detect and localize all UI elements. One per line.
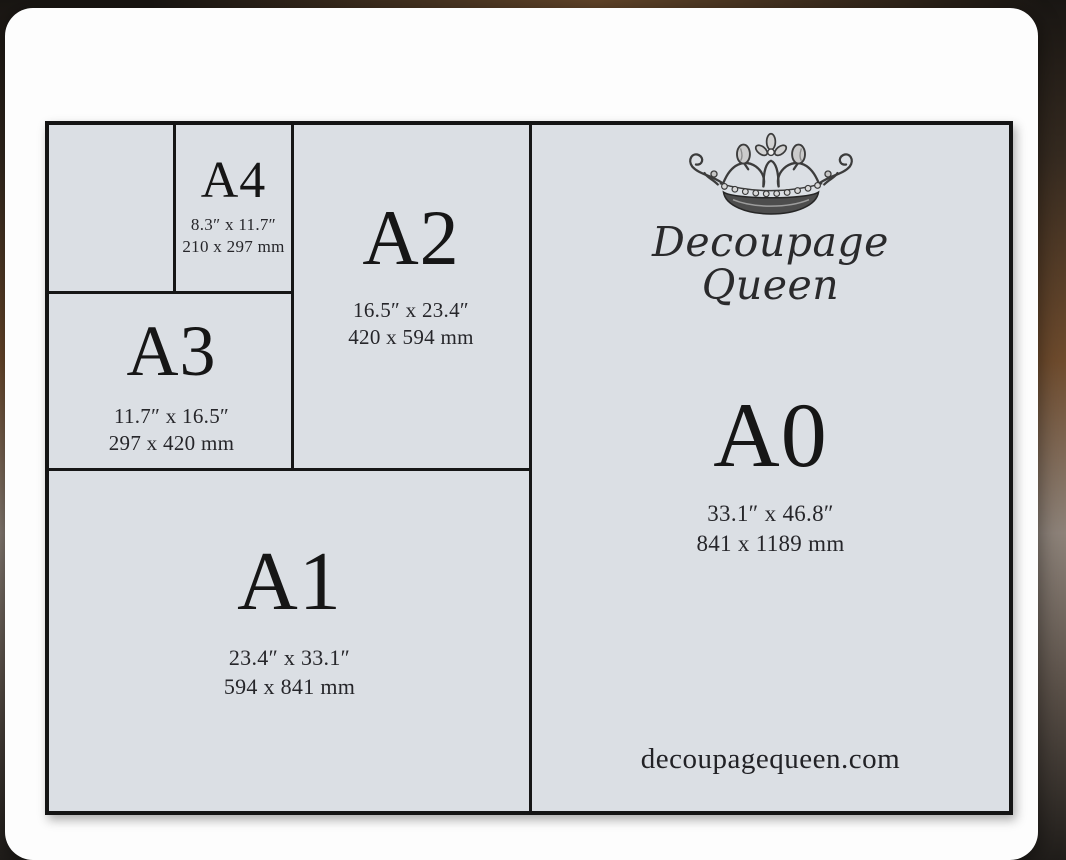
chart-grid: A4 8.3″ x 11.7″ 210 x 297 mm A3 11.7″ x …: [49, 125, 1009, 811]
size-label-a1: A1: [49, 540, 530, 624]
size-box-a2: A2 16.5″ x 23.4″ 420 x 594 mm: [292, 199, 530, 352]
image-card: A4 8.3″ x 11.7″ 210 x 297 mm A3 11.7″ x …: [5, 8, 1038, 860]
brand-name-line1: Decoupage: [532, 221, 1009, 264]
size-mm-a0: 841 x 1189 mm: [532, 529, 1009, 559]
size-inches-a0: 33.1″ x 46.8″: [532, 499, 1009, 529]
brand-name: Decoupage Queen: [532, 221, 1009, 306]
size-inches-a1: 23.4″ x 33.1″: [49, 644, 530, 673]
size-inches-a2: 16.5″ x 23.4″: [292, 297, 530, 324]
size-mm-a3: 297 x 420 mm: [49, 430, 294, 457]
divider-a4-a3: [49, 291, 294, 294]
size-inches-a4: 8.3″ x 11.7″: [173, 214, 294, 236]
size-dims-a1: 23.4″ x 33.1″ 594 x 841 mm: [49, 644, 530, 701]
size-mm-a4: 210 x 297 mm: [173, 236, 294, 258]
size-box-a1: A1 23.4″ x 33.1″ 594 x 841 mm: [49, 540, 530, 701]
size-box-a0: A0 33.1″ x 46.8″ 841 x 1189 mm: [532, 389, 1009, 559]
crown-icon: [676, 131, 866, 219]
size-dims-a4: 8.3″ x 11.7″ 210 x 297 mm: [173, 214, 294, 258]
brand-name-line2: Queen: [532, 264, 1009, 307]
website-url: decoupagequeen.com: [532, 743, 1009, 776]
size-mm-a2: 420 x 594 mm: [292, 324, 530, 351]
size-label-a3: A3: [49, 315, 294, 387]
size-box-a3: A3 11.7″ x 16.5″ 297 x 420 mm: [49, 315, 294, 458]
size-mm-a1: 594 x 841 mm: [49, 673, 530, 702]
size-dims-a2: 16.5″ x 23.4″ 420 x 594 mm: [292, 297, 530, 352]
paper-size-comparison-chart: A4 8.3″ x 11.7″ 210 x 297 mm A3 11.7″ x …: [45, 121, 1013, 815]
size-box-a4: A4 8.3″ x 11.7″ 210 x 297 mm: [173, 155, 294, 258]
size-inches-a3: 11.7″ x 16.5″: [49, 403, 294, 430]
size-label-a2: A2: [292, 199, 530, 277]
size-label-a0: A0: [532, 389, 1009, 481]
divider-a1-top: [49, 468, 532, 471]
photo-backdrop: A4 8.3″ x 11.7″ 210 x 297 mm A3 11.7″ x …: [0, 0, 1066, 860]
size-dims-a0: 33.1″ x 46.8″ 841 x 1189 mm: [532, 499, 1009, 559]
size-label-a4: A4: [173, 155, 294, 207]
size-dims-a3: 11.7″ x 16.5″ 297 x 420 mm: [49, 403, 294, 458]
